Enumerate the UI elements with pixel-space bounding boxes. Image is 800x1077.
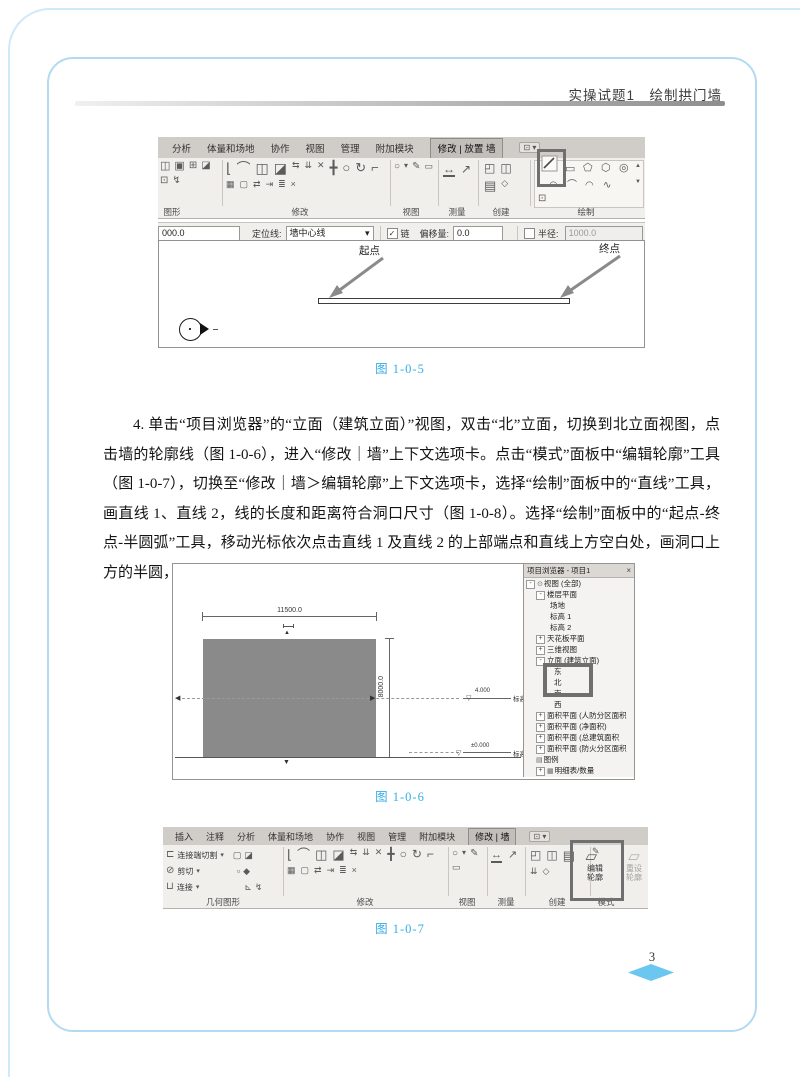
scale-icon[interactable]: ▢: [301, 866, 310, 875]
trim-icon[interactable]: ⌐: [427, 848, 434, 861]
tab-collaborate[interactable]: 协作: [326, 830, 344, 843]
mirror-draw-icon[interactable]: ◪: [274, 161, 287, 175]
panel-separator: [525, 847, 526, 896]
tab-massing-site[interactable]: 体量和场地: [207, 141, 255, 155]
offset-input[interactable]: 0.0: [453, 226, 503, 241]
paste-icon[interactable]: ◫: [160, 161, 170, 172]
dimension-icon[interactable]: ↗: [461, 163, 471, 177]
cut-geometry-button[interactable]: ⊘ 剪切 ▾ ▫ ◆: [166, 863, 280, 879]
mirror-draw-icon[interactable]: ◪: [332, 848, 344, 861]
spline-tool-icon[interactable]: ∿: [603, 181, 611, 191]
tab-view[interactable]: 视图: [357, 830, 375, 843]
options-separator: [380, 226, 381, 240]
hide-icon[interactable]: ▭: [424, 162, 433, 172]
tree-item-west[interactable]: 西: [524, 699, 634, 710]
measure-panel: ↔ ↗: [491, 850, 521, 863]
dimension-height-value: 8000.0: [378, 676, 385, 697]
similar-icon[interactable]: ◫: [546, 849, 557, 862]
page-number: 3: [644, 950, 660, 965]
scale-icon[interactable]: ▢: [240, 180, 249, 189]
array-icon[interactable]: ▦: [287, 866, 296, 875]
panel-label-draw: 绘制: [577, 206, 594, 218]
panel-label-create: 创建: [492, 206, 509, 218]
caret-down-icon: ▾: [196, 883, 200, 891]
hide-icon[interactable]: ▭: [452, 863, 461, 872]
view-panel: ○ ▾ ✎ ▭: [452, 849, 484, 872]
project-browser-header[interactable]: 项目浏览器 - 项目1 ×: [524, 564, 634, 578]
figure-caption-1-0-6: 图 1-0-6: [300, 786, 500, 805]
line-tool-icon[interactable]: [541, 155, 558, 172]
tab-annotate[interactable]: 注释: [206, 830, 224, 843]
figure-1-0-6: 11500.0 ▲ 8000.0 ◀ ▶ ▽ 4.000 标高 2 ▽ ±0.0…: [172, 563, 635, 780]
elevation-marker-dot: [189, 328, 191, 330]
delete-icon[interactable]: ✕: [317, 161, 325, 175]
measure-tool-icon[interactable]: ◪: [201, 161, 210, 172]
panel-label-view: 视图: [402, 206, 419, 218]
unpin-icon[interactable]: ×: [291, 180, 296, 189]
panel-separator: [438, 160, 439, 206]
rectangle-tool-icon[interactable]: ▭: [565, 164, 575, 175]
cut-icon[interactable]: ⇊: [362, 848, 370, 861]
dimension-line-top: [203, 616, 376, 617]
ground-line: [175, 757, 521, 758]
tree-item-3d-views[interactable]: +三维视图: [524, 644, 634, 655]
level-tool-icon[interactable]: ⊾: [244, 883, 252, 892]
tab-analyze[interactable]: 分析: [237, 830, 255, 843]
level-2-elevation: 4.000: [475, 688, 490, 694]
measure-length-icon[interactable]: ↔: [443, 163, 455, 177]
copy-icon[interactable]: ○: [342, 161, 350, 175]
wall-join-icon[interactable]: ⌊: [226, 161, 231, 175]
level-1-line: [463, 752, 511, 753]
hammer-icon[interactable]: ↯: [172, 176, 180, 186]
array-icon[interactable]: ▦: [226, 180, 235, 189]
tree-item-area-plan-gross[interactable]: +面积平面 (总建筑面积: [524, 732, 634, 743]
top-marker-icon: ▲: [284, 630, 290, 636]
delete-icon[interactable]: ✕: [375, 848, 383, 861]
panel-separator: [487, 847, 488, 896]
tab-addins[interactable]: 附加模块: [376, 141, 414, 155]
level-2-head-icon: ▽: [466, 694, 471, 702]
tab-view[interactable]: 视图: [306, 141, 325, 155]
figure-caption-1-0-7: 图 1-0-7: [300, 918, 500, 937]
level-1-elevation: ±0.000: [471, 743, 489, 749]
draw-scroll-down-icon[interactable]: ▼: [635, 179, 641, 185]
mirror-axis-icon[interactable]: ◫: [315, 848, 327, 861]
radius-input[interactable]: 1000.0: [565, 226, 643, 241]
view-panel: ○ ▾ ✎ ▭: [394, 162, 434, 172]
measure-panel: ↔ ↗: [443, 163, 475, 177]
move-icon[interactable]: ╋: [330, 161, 338, 175]
join-icon[interactable]: ⊡: [160, 176, 168, 186]
trim-icon[interactable]: ⌐: [371, 161, 379, 175]
cope-icon[interactable]: ⇆: [292, 161, 300, 175]
reference-arrow-left-icon: ◀: [175, 694, 180, 702]
panel-separator: [478, 160, 479, 206]
tree-item-level-2[interactable]: 标高 2: [524, 622, 634, 633]
reset-profile-icon: ▱: [628, 849, 640, 864]
hammer-icon[interactable]: ↯: [255, 883, 263, 892]
panel-label-graphics: 图形: [163, 206, 180, 218]
wall-height-input[interactable]: 000.0: [158, 226, 240, 241]
align-icon[interactable]: ⇄: [314, 866, 322, 875]
tab-analyze[interactable]: 分析: [172, 141, 191, 155]
measure-length-icon[interactable]: ↔: [491, 850, 502, 863]
tree-item-level-1[interactable]: 标高 1: [524, 611, 634, 622]
offset-label: 偏移量:: [420, 227, 450, 240]
create-panel: ◰ ◫ ▤ ◇: [484, 162, 526, 192]
tree-item-views-all[interactable]: -⊙视图 (全部): [524, 578, 634, 589]
elevation-marker-tick: [213, 329, 218, 330]
fillet-icon[interactable]: ⌒: [297, 848, 310, 861]
figure-1-0-5: 分析 体量和场地 协作 视图 管理 附加模块 修改 | 放置 墙 ⊡ ▾ ◫ ▣…: [158, 137, 645, 348]
inscribed-polygon-tool-icon[interactable]: ⬠: [583, 163, 593, 174]
radius-checkbox[interactable]: [524, 228, 535, 239]
tab-massing-site[interactable]: 体量和场地: [268, 830, 313, 843]
radius-label: 半径:: [538, 227, 559, 240]
ribbon-overflow-icon[interactable]: ⊡ ▾: [529, 831, 550, 842]
modify-panel: ⌊ ⌒ ◫ ◪ ⇆ ⇊ ✕ ╋ ○ ↻ ⌐ ▦ ▢ ⇄ ⇥ ≣ ×: [287, 848, 445, 875]
pin-icon[interactable]: ≣: [278, 180, 286, 189]
parts-icon[interactable]: ⇊: [530, 867, 538, 876]
edit-profile-highlight-box: [570, 840, 624, 901]
extra-geometry-icon[interactable]: ◪: [244, 851, 253, 860]
elevation-marker-pointer: [200, 323, 209, 335]
schedule-icon: ▦: [547, 766, 554, 776]
panel-label-create: 创建: [548, 896, 565, 908]
level-1-head-icon: ▽: [456, 749, 461, 757]
split-icon[interactable]: ⇥: [266, 180, 274, 189]
move-icon[interactable]: ╋: [387, 848, 394, 861]
dimension-width-value: 11500.0: [203, 607, 376, 614]
level-1-dashed-line: [409, 752, 459, 753]
close-icon[interactable]: ×: [626, 566, 631, 575]
tab-modify-wall[interactable]: 修改 | 墙: [468, 828, 516, 845]
tab-modify-place-wall[interactable]: 修改 | 放置 墙: [430, 138, 504, 158]
align-icon[interactable]: ⇄: [253, 180, 261, 189]
dimension-tick: [376, 612, 377, 621]
panel-label-modify: 修改: [356, 896, 373, 908]
tab-insert[interactable]: 插入: [175, 830, 193, 843]
bulb-icon[interactable]: ○: [394, 162, 400, 172]
assembly-icon[interactable]: ▤: [484, 179, 496, 192]
copy-icon[interactable]: ○: [400, 848, 407, 861]
caret-down-icon: ▾: [196, 867, 200, 875]
location-line-select[interactable]: 墙中心线 ▾: [286, 226, 374, 241]
geometry-icon[interactable]: ▣: [174, 161, 184, 172]
arc-center-tool-icon[interactable]: ⌒: [567, 181, 577, 191]
views-icon: ⊙: [537, 579, 543, 589]
tree-item-area-plan-fire[interactable]: +面积平面 (防火分区面积: [524, 743, 634, 754]
rotate-icon[interactable]: ↻: [355, 161, 366, 175]
level-2-dashed-line: [177, 698, 459, 699]
tree-item-legends[interactable]: ▤图例: [524, 754, 634, 765]
panel-separator: [222, 160, 223, 206]
similar-icon[interactable]: ◫: [500, 162, 511, 174]
extra-geometry-icon[interactable]: ◆: [243, 867, 250, 876]
panel-separator: [283, 847, 284, 896]
dimension-grip-icon: [283, 624, 294, 628]
split-icon[interactable]: ⇥: [327, 866, 335, 875]
tree-item-area-plan-net[interactable]: +面积平面 (净面积): [524, 721, 634, 732]
ribbon-tab-row: 分析 体量和场地 协作 视图 管理 附加模块 修改 | 放置 墙 ⊡ ▾: [158, 137, 645, 159]
chain-label: 链: [401, 227, 410, 240]
wall-end-cut-button[interactable]: ⊏ 连接端切割 ▾ ▢ ◪: [166, 847, 280, 863]
extra-geometry-icon[interactable]: ▢: [233, 851, 242, 860]
wall-end-cut-icon: ⊏: [166, 850, 174, 860]
cope-icon[interactable]: ⇆: [350, 848, 358, 861]
dimension-icon[interactable]: ↗: [508, 850, 517, 863]
pick-lines-tool-icon[interactable]: ⊡: [538, 194, 546, 204]
fillet-icon[interactable]: ⌒: [236, 161, 250, 175]
body-paragraph: 4. 单击“项目浏览器”的“立面（建筑立面）”视图，双击“北”立面，切换到北立面…: [103, 411, 720, 588]
pin-icon[interactable]: ≣: [339, 866, 347, 875]
book-page: 实操试题1 绘制拱门墙 分析 体量和场地 协作 视图 管理 附加模块 修改 | …: [0, 0, 800, 1077]
tree-item-schedules[interactable]: +▦明细表/数量: [524, 765, 634, 776]
group-icon[interactable]: ◰: [484, 162, 495, 174]
tab-addins[interactable]: 附加模块: [419, 830, 455, 843]
wall-join-icon[interactable]: ⌊: [287, 848, 292, 861]
tree-item-floor-plans[interactable]: -楼层平面: [524, 589, 634, 600]
chain-checkbox[interactable]: ✓: [387, 228, 398, 239]
legend-icon: ▤: [536, 755, 543, 765]
circumscribed-polygon-tool-icon[interactable]: ⬡: [601, 163, 611, 174]
caret-down-icon: ▾: [220, 851, 224, 859]
figure-1-0-7: 插入 注释 分析 体量和场地 协作 视图 管理 附加模块 修改 | 墙 ⊡ ▾ …: [163, 827, 648, 908]
tab-collaborate[interactable]: 协作: [271, 141, 290, 155]
parts2-icon[interactable]: ◇: [543, 867, 550, 876]
rotate-icon[interactable]: ↻: [412, 848, 422, 861]
header-rule: [75, 101, 725, 106]
wall-segment[interactable]: [318, 298, 570, 304]
tree-item-site[interactable]: 场地: [524, 600, 634, 611]
modify-panel: ⌊ ⌒ ◫ ◪ ⇆ ⇊ ✕ ╋ ○ ↻ ⌐ ▦ ▢ ⇄ ⇥ ≣ ×: [226, 161, 386, 189]
panel-separator: [390, 160, 391, 206]
options-separator: [517, 226, 518, 240]
tangent-arc-tool-icon[interactable]: ◠: [585, 181, 594, 191]
project-browser-title: 项目浏览器 - 项目1: [527, 565, 590, 576]
drawing-canvas[interactable]: 起点 终点: [158, 240, 645, 348]
location-line-label: 定位线:: [252, 227, 282, 240]
annotation-arrows: [159, 241, 644, 345]
ribbon-body: ◫ ▣ ⊞ ◪ ⊡ ↯ ⌊ ⌒ ◫ ◪ ⇆ ⇊ ✕ ╋ ○ ↻ ⌐ ▦: [158, 158, 645, 219]
reference-arrow-right-icon: ▶: [370, 694, 375, 702]
tree-item-area-plan-civil[interactable]: +面积平面 (人防分区面积: [524, 710, 634, 721]
unpin-icon[interactable]: ×: [352, 866, 357, 875]
circle-tool-icon[interactable]: ◎: [619, 163, 629, 174]
join-geometry-icon: ⊔: [166, 882, 174, 892]
figure-caption-1-0-5: 图 1-0-5: [300, 358, 500, 377]
geometry-panel: ⊏ 连接端切割 ▾ ▢ ◪ ⊘ 剪切 ▾ ▫ ◆ ⊔ 连接 ▾ ⊾: [166, 847, 280, 895]
join-geometry-button[interactable]: ⊔ 连接 ▾ ⊾ ↯: [166, 879, 280, 895]
draw-scroll-up-icon[interactable]: ▲: [635, 163, 641, 169]
extra-geometry-icon[interactable]: ▫: [237, 867, 240, 876]
panel-separator: [530, 160, 531, 206]
tab-manage[interactable]: 管理: [341, 141, 360, 155]
start-point-label: 起点: [359, 243, 380, 258]
caret-icon: ▾: [404, 162, 408, 172]
group-icon[interactable]: ◰: [530, 849, 541, 862]
panel-label-view: 视图: [458, 896, 475, 908]
end-point-label: 终点: [599, 241, 620, 256]
cut-icon[interactable]: ⇊: [304, 161, 312, 175]
bottom-marker-icon: ▼: [283, 759, 290, 766]
panel-label-geometry: 几何图形: [206, 896, 240, 908]
north-elevation-highlight-box: [543, 663, 593, 697]
mirror-axis-icon[interactable]: ◫: [255, 161, 268, 175]
linework-icon[interactable]: ✎: [470, 849, 478, 859]
cut-geometry-icon: ⊘: [166, 866, 174, 876]
linework-icon[interactable]: ✎: [412, 162, 420, 172]
tree-item-ceiling-plans[interactable]: +天花板平面: [524, 633, 634, 644]
bulb-icon[interactable]: ○: [452, 849, 458, 859]
parts-icon[interactable]: ◇: [501, 179, 508, 192]
panel-label-measure: 测量: [497, 896, 514, 908]
tab-manage[interactable]: 管理: [388, 830, 406, 843]
clipboard-icon[interactable]: ⊞: [189, 161, 197, 172]
panel-label-measure: 测量: [448, 206, 465, 218]
panel-label-modify: 修改: [291, 206, 308, 218]
line-tool-highlight-box: [537, 149, 566, 187]
panel-separator: [448, 847, 449, 896]
caret-icon: ▾: [462, 849, 466, 859]
dimension-tick: [385, 638, 394, 639]
dropdown-caret-icon: ▾: [365, 227, 370, 240]
graphics-panel: ◫ ▣ ⊞ ◪ ⊡ ↯: [160, 161, 220, 186]
